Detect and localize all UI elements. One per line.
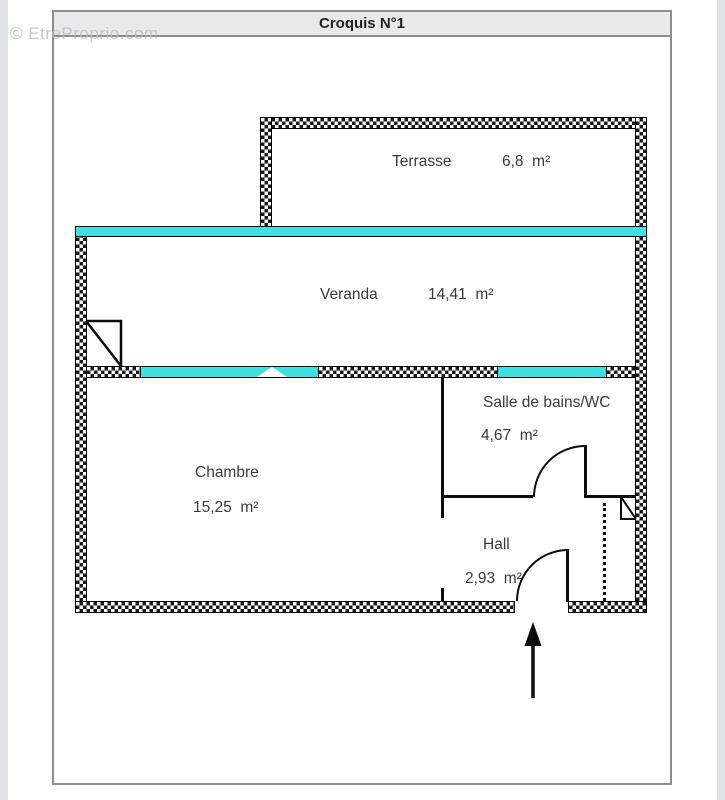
closet-dotted-line — [603, 503, 606, 601]
wall-terrace-top — [260, 117, 647, 129]
room-name-veranda: Veranda — [320, 286, 378, 304]
wall-terrace-left — [260, 117, 272, 227]
room-name-salle-de-bains: Salle de bains/WC — [483, 394, 611, 412]
room-area-veranda: 14,41 m² — [428, 286, 493, 304]
wall-left — [75, 226, 87, 613]
right-edge-strip — [717, 0, 725, 800]
window-bathroom — [497, 366, 607, 378]
partition-bath-bottom-right — [584, 495, 636, 498]
wall-mid-b — [318, 366, 498, 378]
window-chambre — [140, 366, 319, 378]
partition-bath-bottom-left — [443, 495, 533, 498]
page-title: Croquis N°1 — [319, 15, 405, 32]
room-area-hall: 2,93 m² — [465, 570, 522, 588]
room-area-salle-de-bains: 4,67 m² — [481, 427, 538, 445]
veranda-glazed-wall — [75, 226, 647, 237]
room-area-terrasse: 6,8 m² — [502, 153, 550, 171]
room-name-chambre: Chambre — [195, 464, 259, 482]
left-edge-strip — [0, 0, 8, 800]
wall-bottom-b — [568, 601, 647, 613]
floor-plan-canvas: Croquis N°1 © EtreProprio.com Terrasse 6… — [0, 0, 725, 800]
wall-mid-a — [86, 366, 142, 378]
wall-bottom-a — [75, 601, 515, 613]
wall-right — [635, 117, 647, 613]
partition-chambre-hall-stub — [441, 588, 444, 602]
wall-mid-c — [606, 366, 636, 378]
room-area-chambre: 15,25 m² — [193, 499, 258, 517]
room-name-terrasse: Terrasse — [392, 153, 451, 171]
watermark: © EtreProprio.com — [10, 24, 159, 44]
room-name-hall: Hall — [483, 536, 510, 554]
